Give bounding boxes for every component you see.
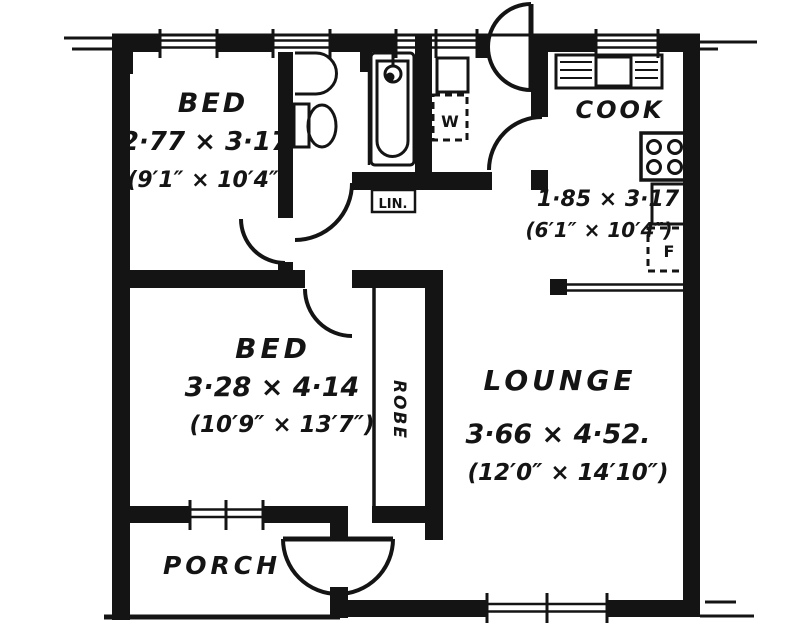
- lounge-dim-metric: 3·66 × 4·52.: [466, 419, 651, 450]
- laundry-trough: [437, 58, 468, 92]
- window: [487, 593, 607, 623]
- wall: [263, 506, 348, 523]
- wall: [217, 36, 273, 52]
- wall: [425, 283, 443, 540]
- bed2-door-arc: [305, 289, 352, 336]
- front-door: [283, 539, 393, 594]
- wall: [531, 36, 596, 52]
- bed2-dim-metric: 3·28 × 4·14: [185, 372, 360, 403]
- window: [190, 500, 263, 530]
- cook-dim-imperial: (6′1″ × 10′4″): [526, 218, 673, 242]
- wall: [348, 600, 487, 617]
- bed1-dim-metric: 2·77 × 3·17: [121, 127, 290, 157]
- bathtub: [371, 53, 414, 165]
- sink-unit: [556, 55, 662, 88]
- breakfast-bar: [550, 279, 683, 295]
- washer-label: W: [441, 112, 459, 131]
- wall: [531, 52, 548, 117]
- bed2-dim-imperial: (10′9″ × 13′7″): [189, 412, 374, 438]
- toilet: [294, 104, 336, 147]
- bathroom-door-arc: [295, 183, 352, 240]
- lounge-dim-imperial: (12′0″ × 14′10″): [467, 460, 668, 486]
- cooktop: [641, 133, 688, 180]
- floor-plan-page: BED 2·77 × 3·17 (9′1″ × 10′4″) BED 3·28 …: [0, 0, 800, 644]
- cook-name: COOK: [575, 96, 664, 124]
- wall: [112, 36, 130, 620]
- robe-name: ROBE: [389, 380, 409, 440]
- wall: [415, 36, 432, 172]
- floor-plan-drawing: BED 2·77 × 3·17 (9′1″ × 10′4″) BED 3·28 …: [0, 0, 800, 644]
- window: [160, 29, 217, 58]
- wall: [112, 270, 305, 288]
- bed1-door-arc: [241, 219, 285, 263]
- lounge-name: LOUNGE: [484, 364, 637, 397]
- wall: [112, 506, 190, 523]
- bar-end-post: [550, 279, 567, 295]
- bed1-name: BED: [178, 88, 248, 119]
- wall: [683, 36, 700, 617]
- linen-label: LIN.: [379, 197, 408, 212]
- cook-dim-metric: 1·85 × 3·17: [537, 187, 680, 212]
- porch-name: PORCH: [163, 551, 281, 580]
- kitchen-door-arc: [489, 117, 542, 170]
- boundary-lines: [64, 38, 757, 616]
- wall: [352, 172, 492, 190]
- basin: [295, 53, 337, 94]
- wall: [330, 36, 396, 52]
- bed2-name: BED: [235, 332, 311, 365]
- wall: [372, 506, 443, 523]
- back-door: [488, 4, 531, 90]
- bed1-dim-imperial: (9′1″ × 10′4″): [127, 168, 289, 193]
- wall: [607, 600, 700, 617]
- fridge-label: F: [664, 242, 675, 261]
